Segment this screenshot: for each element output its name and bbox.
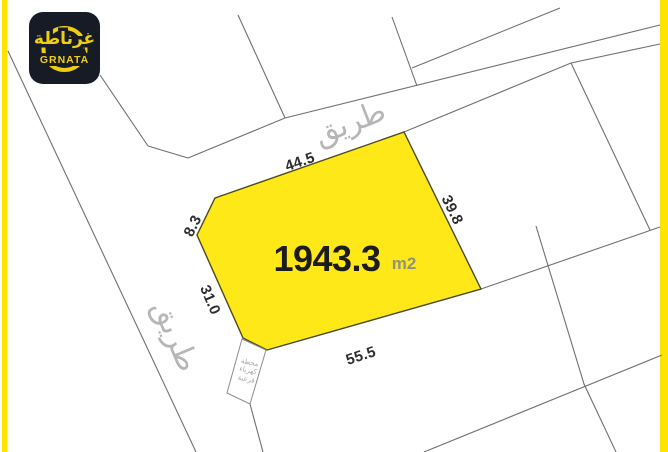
parcel-line [424,355,662,452]
cadastral-map-canvas [0,0,668,452]
parcel-line [412,8,560,68]
logo-arabic-text: غرناطة [34,29,95,49]
parcel-line [392,17,417,86]
parcel-line [238,15,285,118]
parcel-line [536,226,616,452]
parcel-line [250,404,263,452]
plot-area-value: 1943.3 [273,238,380,280]
grnata-logo: غرناطة GRNATA [29,12,100,84]
plot-map: طريق طريق 44.5 8.3 39.8 31.0 55.5 1943.3… [0,0,668,452]
logo-latin-text: GRNATA [40,54,89,66]
plot-area-unit: m2 [392,254,417,274]
left-border-strip [2,0,8,452]
parcel-line [100,75,148,146]
right-border-strip [660,0,668,452]
parcel-line [571,63,650,230]
parcel-line [8,51,196,452]
parcel-line [188,118,285,158]
parcel-line [148,146,188,158]
parcel-line [481,227,660,289]
